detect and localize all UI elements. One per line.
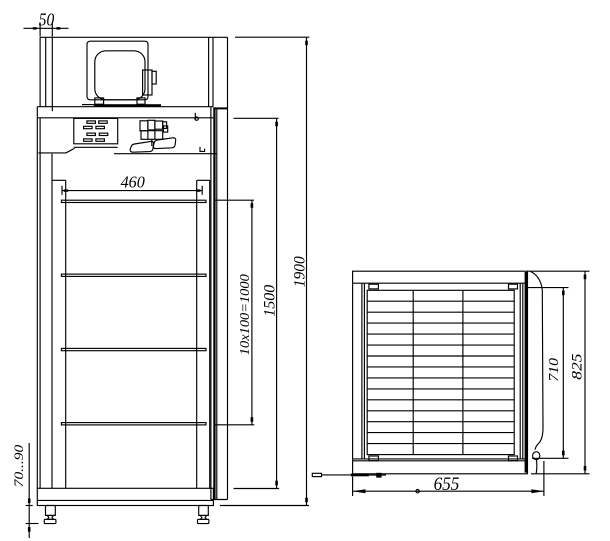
svg-text:50: 50 [39,9,55,29]
svg-text:1900: 1900 [291,256,308,287]
svg-text:655: 655 [434,474,460,495]
svg-text:825: 825 [569,353,585,379]
svg-text:10x100=1000: 10x100=1000 [238,274,253,355]
svg-text:1500: 1500 [262,284,279,316]
svg-text:460: 460 [121,173,146,192]
svg-text:70...90: 70...90 [11,444,26,487]
svg-text:710: 710 [547,358,562,382]
